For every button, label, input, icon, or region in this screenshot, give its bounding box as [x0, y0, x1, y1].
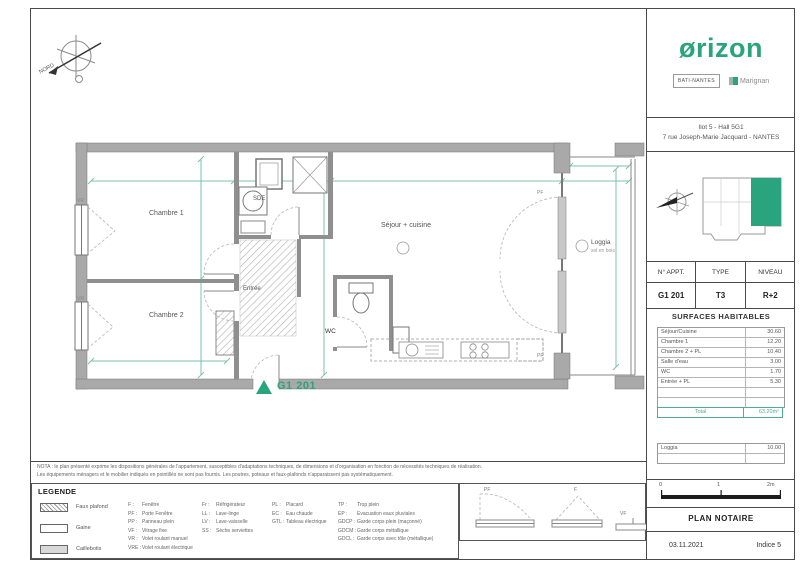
key-plan-compass-icon — [653, 180, 697, 228]
surfaces-cell: SURFACES HABITABLES Séjour/Cuisine30.60 … — [647, 307, 795, 479]
apt-header-niveau: NIVEAU — [746, 262, 795, 283]
unit-number-label: G1 201 — [277, 380, 316, 392]
scale-bar-cell: 0 1 2m — [647, 479, 795, 508]
project-address-line1: Ilot 5 - Hall 5G1 — [647, 123, 795, 133]
legend-entry: GDCM :Garde corps métallique — [338, 527, 433, 536]
document-indice: Indice 5 — [756, 542, 781, 549]
legend-entry: PF :Porte Fenêtre — [128, 510, 193, 519]
document-date: 03.11.2021 — [669, 542, 704, 549]
surfaces-total-label: Total — [658, 408, 744, 417]
surface-row: Séjour/Cuisine30.60 — [658, 328, 784, 337]
dimension-lines — [88, 156, 632, 378]
apt-header-type: TYPE — [696, 262, 745, 283]
legend-swatch-label: Faux plafond — [76, 504, 108, 510]
key-plan-cell — [647, 152, 795, 261]
apt-header-numero: N° APPT. — [647, 262, 696, 283]
tag-vr-2: VR — [77, 297, 84, 302]
floor-plan — [31, 9, 646, 461]
nota-line-1: NOTA : le plan présenté exprime les disp… — [37, 465, 482, 470]
apt-value-numero: G1 201 — [647, 283, 696, 308]
surface-row: WC1.70 — [658, 367, 784, 377]
document-title: PLAN NOTAIRE — [688, 514, 753, 523]
outer-walls — [76, 143, 644, 389]
loggia-rail — [570, 157, 635, 375]
tag-pf-1: PF — [537, 191, 543, 196]
legend-entry: PP :Panneau plein — [128, 518, 193, 527]
legend-entry: VF :Vitrage fixe — [128, 527, 193, 536]
room-label-chambre1: Chambre 1 — [149, 210, 184, 217]
unit-entrance-marker — [256, 380, 272, 394]
surfaces-total-value: 63.20m² — [744, 408, 782, 417]
annex-surface-row — [658, 453, 784, 463]
apt-value-niveau: R+2 — [746, 283, 795, 308]
bati-nantes-logo: BATI-NANTES — [673, 74, 720, 88]
legend-column-3: PL :PlacardEC :Eau chaudeGTL :Tableau él… — [272, 501, 327, 527]
document-title-cell: PLAN NOTAIRE — [647, 506, 795, 532]
tag-vr-1: VR — [77, 199, 84, 204]
glass-sliding-doors — [500, 173, 566, 353]
marignan-logo-icon — [729, 77, 738, 85]
legend-entry: VRE :Volet roulant électrique — [128, 544, 193, 553]
surfaces-title: SURFACES HABITABLES — [647, 312, 795, 321]
tag-pf-2: PF — [537, 354, 543, 359]
legend-entry: EP :Evacuation eaux pluviales — [338, 510, 433, 519]
room-label-loggia: Loggia — [591, 240, 611, 247]
surface-row: Chambre 112.20 — [658, 337, 784, 347]
legend-entry: LL :Lave-linge — [202, 510, 253, 519]
loggia-floor-note: sol en bois — [591, 249, 615, 254]
room-label-wc: WC — [325, 329, 336, 336]
page: NORD Chambre 1 Chambre 2 SDE Entrée WC S… — [0, 0, 800, 566]
legend-swatch-gaine — [40, 524, 68, 533]
legend-entry: GDCL :Garde corps avec tôle (métallique) — [338, 535, 433, 544]
legend-box: LEGENDE Faux plafond Gaine Caillebotis F… — [31, 483, 459, 559]
legend-entry: F :Fenêtre — [128, 501, 193, 510]
surface-row: Salle d'eau3.00 — [658, 357, 784, 367]
legend-swatch-faux-plafond — [40, 503, 68, 512]
partner-logos: BATI-NANTES Marignan — [647, 74, 795, 88]
window-shutter-swings — [88, 207, 115, 348]
legend-entry: TP :Trop plein — [338, 501, 433, 510]
key-plan-highlighted-unit — [751, 178, 781, 226]
window-symbol-label-vf: VF — [620, 511, 626, 517]
plan-sheet: NORD Chambre 1 Chambre 2 SDE Entrée WC S… — [30, 8, 795, 560]
annex-surfaces-table: Loggia10.00 — [657, 443, 785, 464]
legend-swatch-label: Caillebotis — [76, 546, 101, 552]
legend-column-4: TP :Trop pleinEP :Evacuation eaux pluvia… — [338, 501, 433, 544]
surface-row — [658, 397, 784, 407]
project-address-line2: 7 rue Joseph-Marie Jacquard - NANTES — [647, 133, 795, 143]
legend-entry: GDCP :Garde corps plein (maçonné) — [338, 518, 433, 527]
date-indice-cell: 03.11.2021 Indice 5 — [647, 531, 795, 559]
legend-swatch-label: Gaine — [76, 525, 91, 531]
legend-entry: PL :Placard — [272, 501, 327, 510]
legend-column-1: F :FenêtrePF :Porte FenêtrePP :Panneau p… — [128, 501, 193, 552]
room-label-entree: Entrée — [243, 286, 261, 292]
surface-row: Chambre 2 + PL10.40 — [658, 347, 784, 357]
legend-entry: VR :Volet roulant manuel — [128, 535, 193, 544]
logo-cell: ørizon BATI-NANTES Marignan — [647, 9, 795, 118]
marignan-logo-text: Marignan — [740, 78, 769, 85]
legend-entry: SS :Sèche serviettes — [202, 527, 253, 536]
apartment-info-table: N° APPT. TYPE NIVEAU G1 201 T3 R+2 — [647, 261, 795, 309]
surface-row: Entrée + PL5.30 — [658, 377, 784, 387]
legend-entry: LV :Lave-vaisselle — [202, 518, 253, 527]
surface-row — [658, 387, 784, 397]
scale-bar: 0 1 2m — [659, 481, 783, 507]
marignan-logo: Marignan — [729, 77, 769, 85]
scale-bar-graphic — [659, 481, 783, 505]
annex-surface-row: Loggia10.00 — [658, 444, 784, 453]
window-symbols-box: PF F VF — [459, 483, 646, 541]
hatch-zones — [216, 240, 296, 355]
nota-line-2: Les équipements ménagers et le mobilier … — [37, 473, 393, 478]
legend-title: LEGENDE — [38, 487, 76, 496]
room-label-sde: SDE — [253, 196, 265, 202]
legend-entry: Fr :Réfrigérateur — [202, 501, 253, 510]
legend-entry: EC :Eau chaude — [272, 510, 327, 519]
legend-column-2: Fr :RéfrigérateurLL :Lave-lingeLV :Lave-… — [202, 501, 253, 535]
title-block-sidebar: ørizon BATI-NANTES Marignan Ilot 5 - Hal… — [646, 9, 795, 559]
window-symbol-label-f: F — [574, 487, 577, 493]
room-label-sejour: Séjour + cuisine — [381, 222, 431, 229]
main-drawing-area: NORD Chambre 1 Chambre 2 SDE Entrée WC S… — [31, 9, 646, 462]
apt-value-type: T3 — [696, 283, 745, 308]
room-label-chambre2: Chambre 2 — [149, 312, 184, 319]
surfaces-table: Séjour/Cuisine30.60 Chambre 112.20 Chamb… — [657, 327, 785, 408]
orizon-logo: ørizon — [647, 33, 795, 64]
project-address: Ilot 5 - Hall 5G1 7 rue Joseph-Marie Jac… — [647, 117, 795, 152]
key-plan-building — [699, 162, 785, 248]
legend-entry: GTL :Tableau électrique — [272, 518, 327, 527]
window-symbol-label-pf: PF — [484, 487, 490, 493]
legend-swatch-caillebotis — [40, 545, 68, 554]
surfaces-total-row: Total 63.20m² — [657, 407, 783, 418]
north-compass-icon — [49, 35, 101, 83]
